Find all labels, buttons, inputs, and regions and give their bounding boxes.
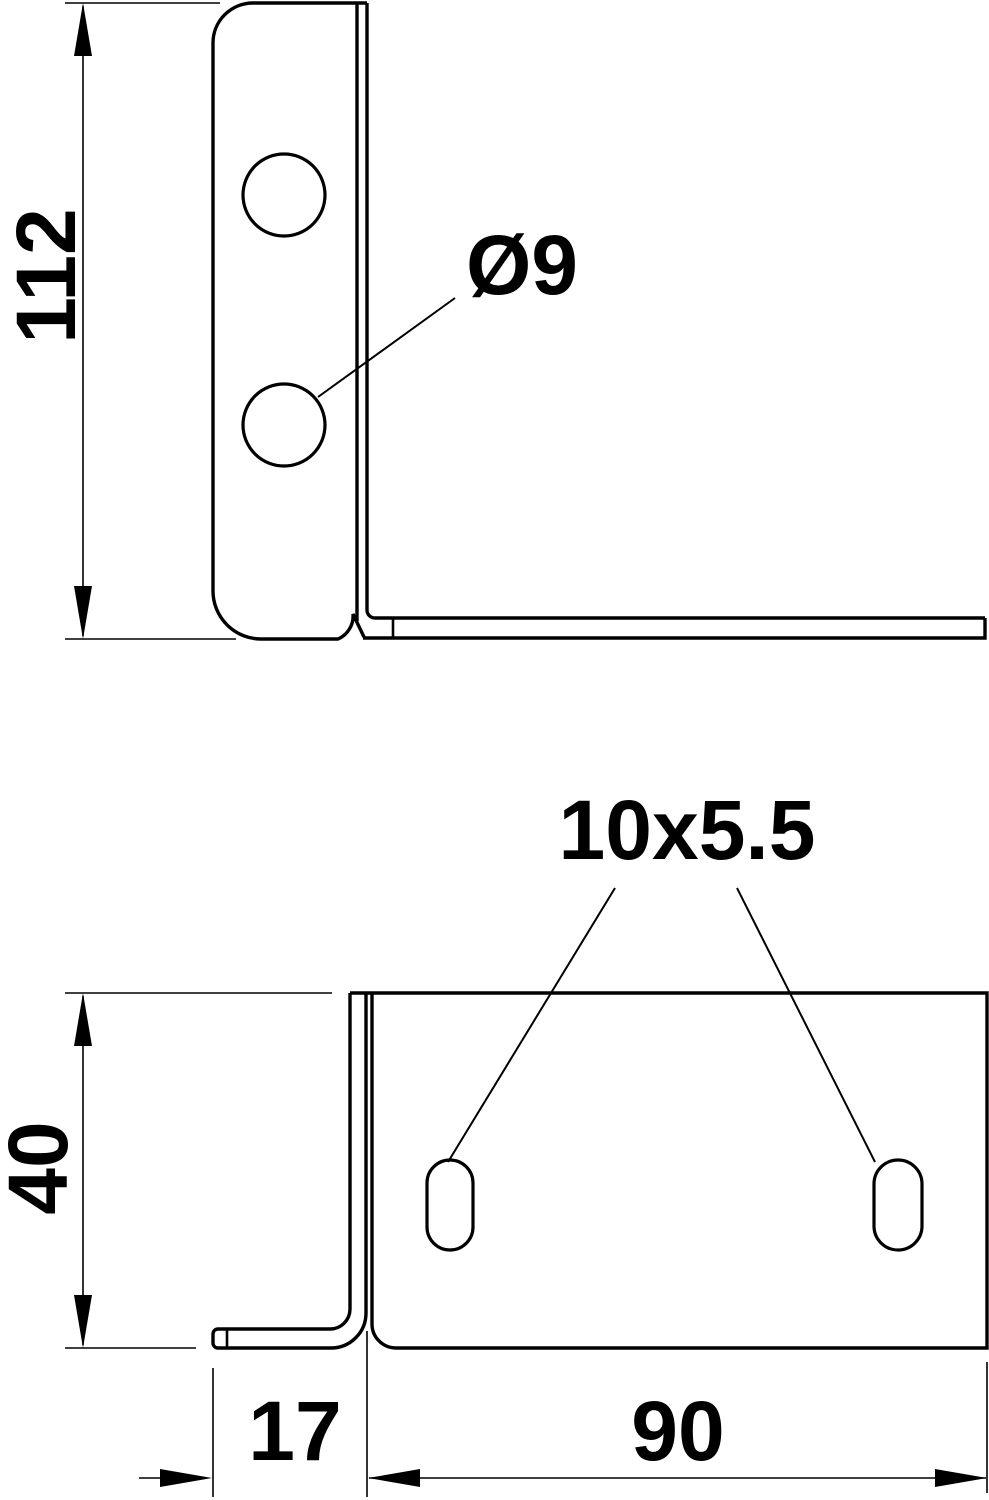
dimension-90-label: 90 bbox=[631, 1389, 724, 1473]
dimension-90-arrow-left bbox=[368, 1469, 420, 1487]
front-view-leg-profile bbox=[213, 993, 366, 1348]
dimension-90-arrow-right bbox=[935, 1469, 987, 1487]
dimension-40-label: 40 bbox=[0, 1121, 80, 1214]
dimension-17-label: 17 bbox=[248, 1389, 341, 1473]
dimension-40-arrow-down bbox=[74, 1295, 92, 1348]
dimension-112-label: 112 bbox=[4, 208, 88, 344]
side-view-base-edge bbox=[363, 618, 985, 638]
technical-drawing-canvas: 112 Ø9 10x5.5 40 17 90 bbox=[0, 0, 989, 1500]
side-view-bend-line-outer bbox=[367, 3, 985, 618]
hole-diameter-label: Ø9 bbox=[466, 223, 578, 307]
dimension-17-arrow bbox=[160, 1469, 212, 1487]
hole-diameter-leader-line bbox=[318, 298, 455, 397]
slot-right bbox=[874, 1160, 922, 1250]
dimension-40 bbox=[65, 993, 332, 1348]
front-view-bend-line bbox=[372, 993, 396, 1348]
mounting-hole-top bbox=[243, 154, 325, 236]
dimension-112-arrow-down bbox=[74, 586, 92, 639]
side-view bbox=[213, 3, 985, 639]
front-view-plate-outline bbox=[350, 993, 987, 1348]
slot-left bbox=[427, 1160, 473, 1250]
dimension-40-arrow-up bbox=[74, 993, 92, 1046]
mounting-hole-bottom bbox=[243, 384, 325, 466]
slot-size-label: 10x5.5 bbox=[559, 788, 816, 872]
side-view-leg-outline bbox=[213, 3, 367, 639]
slot-label-leader-left bbox=[448, 888, 615, 1162]
front-view bbox=[213, 888, 987, 1348]
dimension-112-arrow-up bbox=[74, 3, 92, 56]
slot-label-leader-right bbox=[737, 888, 875, 1162]
